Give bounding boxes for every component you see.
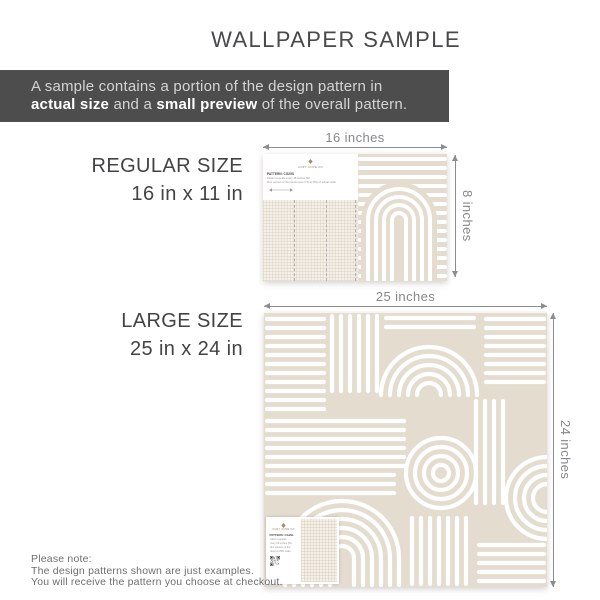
large-width-dimension: 25 inches [264,289,547,307]
regular-size-label: REGULAR SIZE 16 in x 11 in [0,152,243,208]
page-title: WALLPAPER SAMPLE [211,27,461,53]
regular-width-dimension: 16 inches [263,130,447,148]
arrow-right-icon [441,144,447,150]
regular-sample-card: COZY COVE CO PATTERN: CG29S Pattern repe… [263,154,447,281]
large-width-arrow [264,306,547,307]
banner-end: of the overall pattern. [257,96,407,113]
brand-name: COZY COVE CO [267,165,354,169]
regular-size-dims: 16 in x 11 in [0,180,243,208]
regular-height-arrow [455,155,456,277]
regular-pattern-code: PATTERN: CG29S [267,172,354,176]
footer-note: Please note: The design patterns shown a… [31,554,283,589]
banner-bold-small-preview: small preview [156,96,257,113]
large-size-name: LARGE SIZE [0,307,243,335]
arrow-right-icon [541,303,547,309]
large-height-arrow [553,313,554,587]
regular-pattern-preview [263,200,358,281]
large-pattern-code: PATTERN: CG29L [270,533,298,537]
footer-line-3: You will receive the pattern you choose … [31,577,283,589]
fold-line [355,200,356,281]
banner-line1: A sample contains a portion of the desig… [31,78,382,95]
regular-pattern-note-1: Pattern repeats every 26 inches (W). [267,177,354,180]
fold-line [294,200,295,281]
large-pattern-note-2: every 26 inches (W). [270,542,298,545]
regular-pattern-note-2: Mini version of the panels (set of 3) at… [267,181,354,184]
wallpaper-sample-infographic: WALLPAPER SAMPLE A sample contains a por… [0,0,600,600]
large-pattern-preview [301,519,337,582]
large-pattern-note-1: Pattern repeats [270,538,298,541]
regular-width-arrow [263,147,447,148]
large-width-label: 25 inches [264,289,547,304]
regular-actual-size-pattern [358,154,447,281]
large-height-dimension: 24 inches [553,313,573,587]
footer-line-1: Please note: [31,554,283,566]
arrow-down-icon [452,271,458,277]
arrow-left-icon [264,303,270,309]
banner-bold-actual-size: actual size [31,96,109,113]
arrow-up-icon [550,313,556,319]
fold-line [326,200,327,281]
sample-scale-arrow-icon [268,187,294,193]
arrow-down-icon [550,581,556,587]
arrow-left-icon [263,144,269,150]
regular-card-info: COZY COVE CO PATTERN: CG29S Pattern repe… [263,154,358,200]
large-pattern-note-3: Mini preview of the [270,546,298,549]
large-height-label: 24 inches [558,420,573,479]
brand-name: COZY COVE CO [270,528,298,531]
large-size-label: LARGE SIZE 25 in x 24 in [0,307,243,363]
regular-height-dimension: 8 inches [455,155,475,277]
brand-logo-icon [267,157,354,164]
regular-size-name: REGULAR SIZE [0,152,243,180]
large-sample-card: COZY COVE CO PATTERN: CG29L Pattern repe… [264,313,547,587]
arrow-up-icon [452,155,458,161]
regular-height-label: 8 inches [460,190,475,242]
brand-logo-icon [270,521,298,528]
description-banner: A sample contains a portion of the desig… [0,70,449,122]
regular-width-label: 16 inches [263,130,447,145]
banner-mid: and a [109,96,156,113]
large-size-dims: 25 in x 24 in [0,335,243,363]
